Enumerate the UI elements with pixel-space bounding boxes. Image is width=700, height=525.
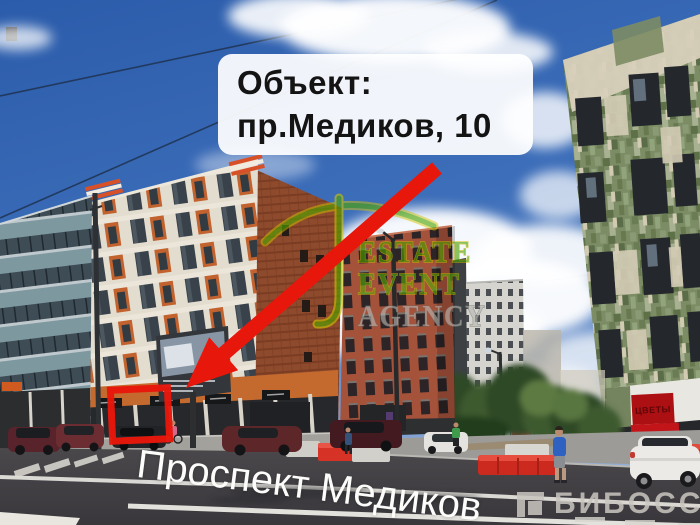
watermark-line-1: ESTATE [358, 235, 472, 269]
biboss-logo: БИБОСС [517, 489, 700, 519]
watermark-line-2: EVENT [358, 267, 461, 301]
callout-line-1: Объект: [237, 61, 533, 104]
photo-scene: ЦВЕТЫ [0, 0, 700, 525]
watermark-line-3: AGENCY [358, 299, 487, 333]
teal-building [0, 196, 92, 452]
flower-shop-sign: ЦВЕТЫ [629, 393, 679, 435]
callout-line-2: пр.Медиков, 10 [237, 104, 533, 147]
flower-shop-sign-text: ЦВЕТЫ [635, 404, 671, 416]
callout-box: Объект: пр.Медиков, 10 [218, 54, 533, 155]
biboss-logo-text: БИБОСС [554, 489, 700, 519]
biboss-logo-icon [517, 490, 547, 519]
